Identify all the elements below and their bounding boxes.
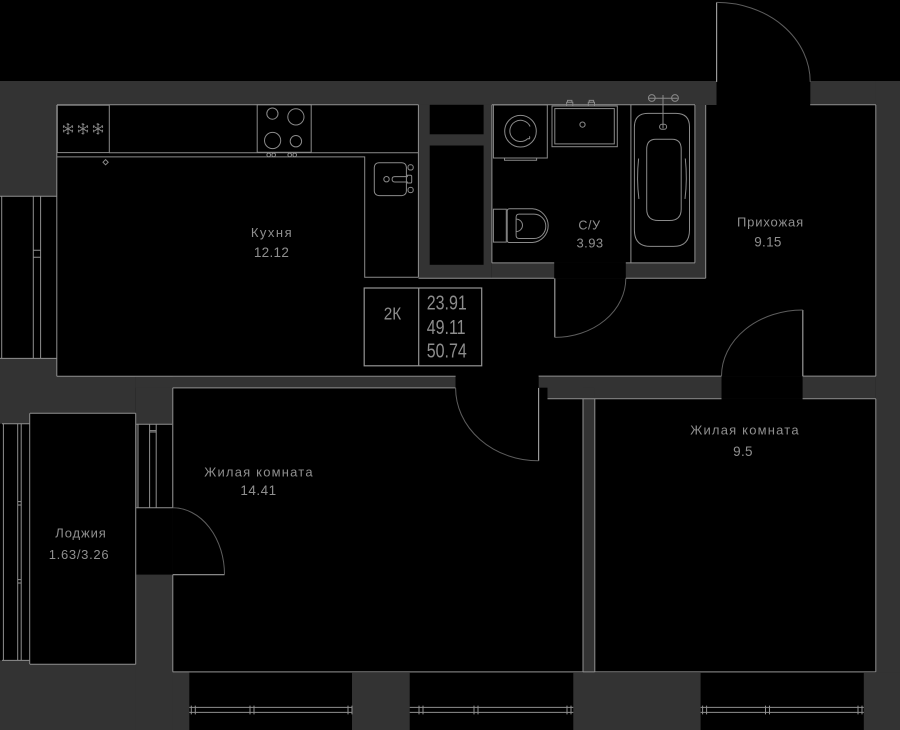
svg-text:Жилая комната: Жилая комната [690,423,800,438]
svg-text:Кухня: Кухня [251,225,293,240]
svg-text:Прихожая: Прихожая [737,215,804,230]
svg-text:23.91: 23.91 [427,292,467,314]
svg-text:9.15: 9.15 [754,235,781,250]
svg-text:49.11: 49.11 [427,316,466,338]
svg-text:1.63/3.26: 1.63/3.26 [49,547,110,562]
svg-text:3.93: 3.93 [577,236,604,251]
svg-text:С/У: С/У [578,219,600,233]
svg-text:2К: 2К [384,303,402,323]
svg-text:50.74: 50.74 [427,340,467,362]
svg-text:9.5: 9.5 [733,444,753,459]
svg-text:14.41: 14.41 [240,483,276,498]
svg-text:Лоджия: Лоджия [55,526,106,541]
svg-text:Жилая комната: Жилая комната [204,465,314,480]
svg-text:12.12: 12.12 [254,245,289,260]
